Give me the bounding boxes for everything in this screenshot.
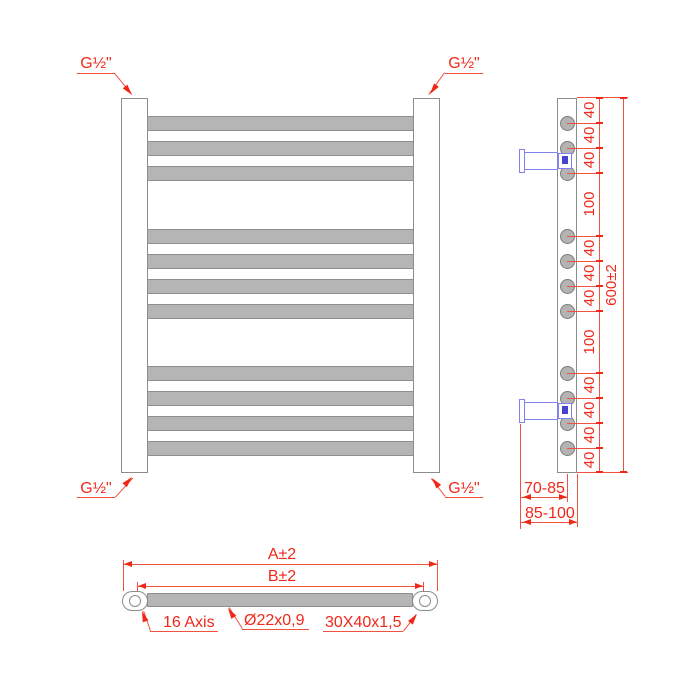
connection-label: G½": [77, 55, 115, 72]
arrowhead: [523, 519, 531, 525]
spacing-label: 100: [582, 184, 598, 224]
tube-rung: [146, 416, 415, 431]
tube-rung: [146, 254, 415, 269]
extension-line: [123, 560, 124, 591]
wall-distance-overall-label: 85-100: [525, 505, 575, 522]
bracket-barrel: [524, 152, 558, 170]
dim-tick: [620, 471, 627, 473]
leader-underline: [77, 73, 115, 74]
arrowhead: [429, 561, 437, 567]
leader-underline: [445, 497, 483, 498]
tube-rung: [146, 391, 415, 406]
spacing-label: 40: [582, 278, 598, 318]
leader-underline: [242, 629, 309, 630]
dim-tick: [620, 97, 627, 99]
overall-width-label: A±2: [252, 546, 312, 563]
arrowhead: [428, 83, 439, 95]
extension-line: [437, 560, 438, 591]
spacing-label: 40: [582, 140, 598, 180]
spacing-label: 40: [582, 440, 598, 480]
tube-rung: [146, 166, 415, 181]
leader-underline: [77, 497, 115, 498]
tube-rung: [146, 279, 415, 294]
arrowhead: [569, 519, 577, 525]
axis-note-label: 16 Axis: [163, 614, 215, 631]
tube-spec-label: Ø22x0,9: [244, 612, 304, 629]
arrowhead: [408, 612, 419, 624]
profile-spec-label: 30X40x1,5: [325, 614, 402, 631]
tube-rung: [146, 116, 415, 131]
arrowhead: [139, 610, 148, 622]
connection-label: G½": [445, 55, 483, 72]
extension-line: [520, 424, 521, 529]
arrowhead: [122, 475, 134, 487]
bracket-core: [562, 406, 568, 414]
leader-underline: [150, 631, 218, 632]
technical-drawing-canvas: G½" G½" G½" G½": [0, 0, 700, 700]
connection-label: G½": [445, 480, 483, 497]
rail-bore-left: [129, 595, 141, 607]
arrowhead: [415, 583, 423, 589]
arrowhead: [138, 583, 146, 589]
extension-line: [577, 474, 578, 527]
dimension-line: [123, 564, 438, 565]
arrowhead: [559, 494, 567, 500]
leader-underline: [323, 631, 403, 632]
bracket-barrel: [524, 402, 558, 420]
tube-rung: [146, 441, 415, 456]
right-rail: [413, 98, 440, 473]
tube-rung: [146, 229, 415, 244]
centers-width-label: B±2: [252, 568, 312, 585]
cross-tube-top-view: [147, 593, 413, 607]
dimension-line: [137, 586, 424, 587]
connection-label: G½": [77, 480, 115, 497]
bracket-core: [562, 156, 568, 164]
arrowhead: [430, 476, 442, 488]
overall-height-label: 600±2: [604, 255, 620, 315]
tube-rung: [146, 366, 415, 381]
arrowhead: [123, 85, 135, 97]
left-rail: [121, 98, 148, 473]
rail-bore-right: [419, 595, 431, 607]
arrowhead: [124, 561, 132, 567]
leader-underline: [445, 73, 483, 74]
spacing-label: 100: [582, 322, 598, 362]
dimension-line-overall-height: [623, 98, 624, 472]
arrowhead: [523, 494, 531, 500]
tube-rung: [146, 304, 415, 319]
tube-rung: [146, 141, 415, 156]
